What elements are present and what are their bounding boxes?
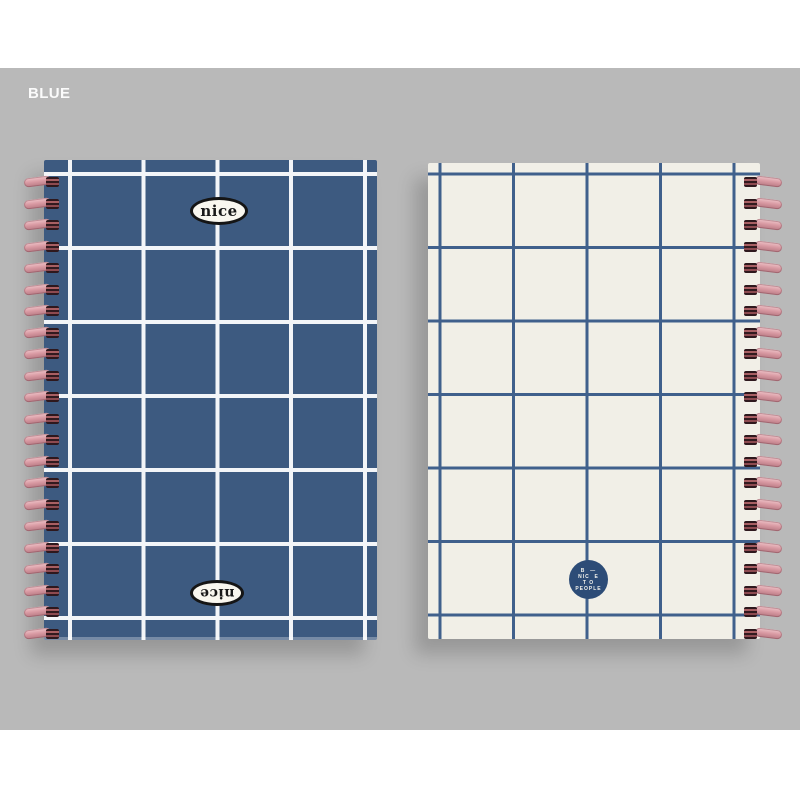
be-nice-to-people-logo-badge: B — NIC E T O PEOPLE [569,560,608,599]
nice-oval-badge-top: nice [190,197,248,225]
product-photo: BLUE nice nice B — NIC E T O PEOPLE [0,0,800,800]
notebook-back-cover: B — NIC E T O PEOPLE [428,163,760,639]
notebook-front-cover: nice nice [44,160,377,640]
color-swatch-label: BLUE [28,85,70,102]
nice-oval-badge-bottom-upside-down: nice [190,580,244,606]
blue-grid-cover [44,160,377,640]
paper-stack-edge [44,637,377,640]
logo-line: PEOPLE [569,586,608,592]
